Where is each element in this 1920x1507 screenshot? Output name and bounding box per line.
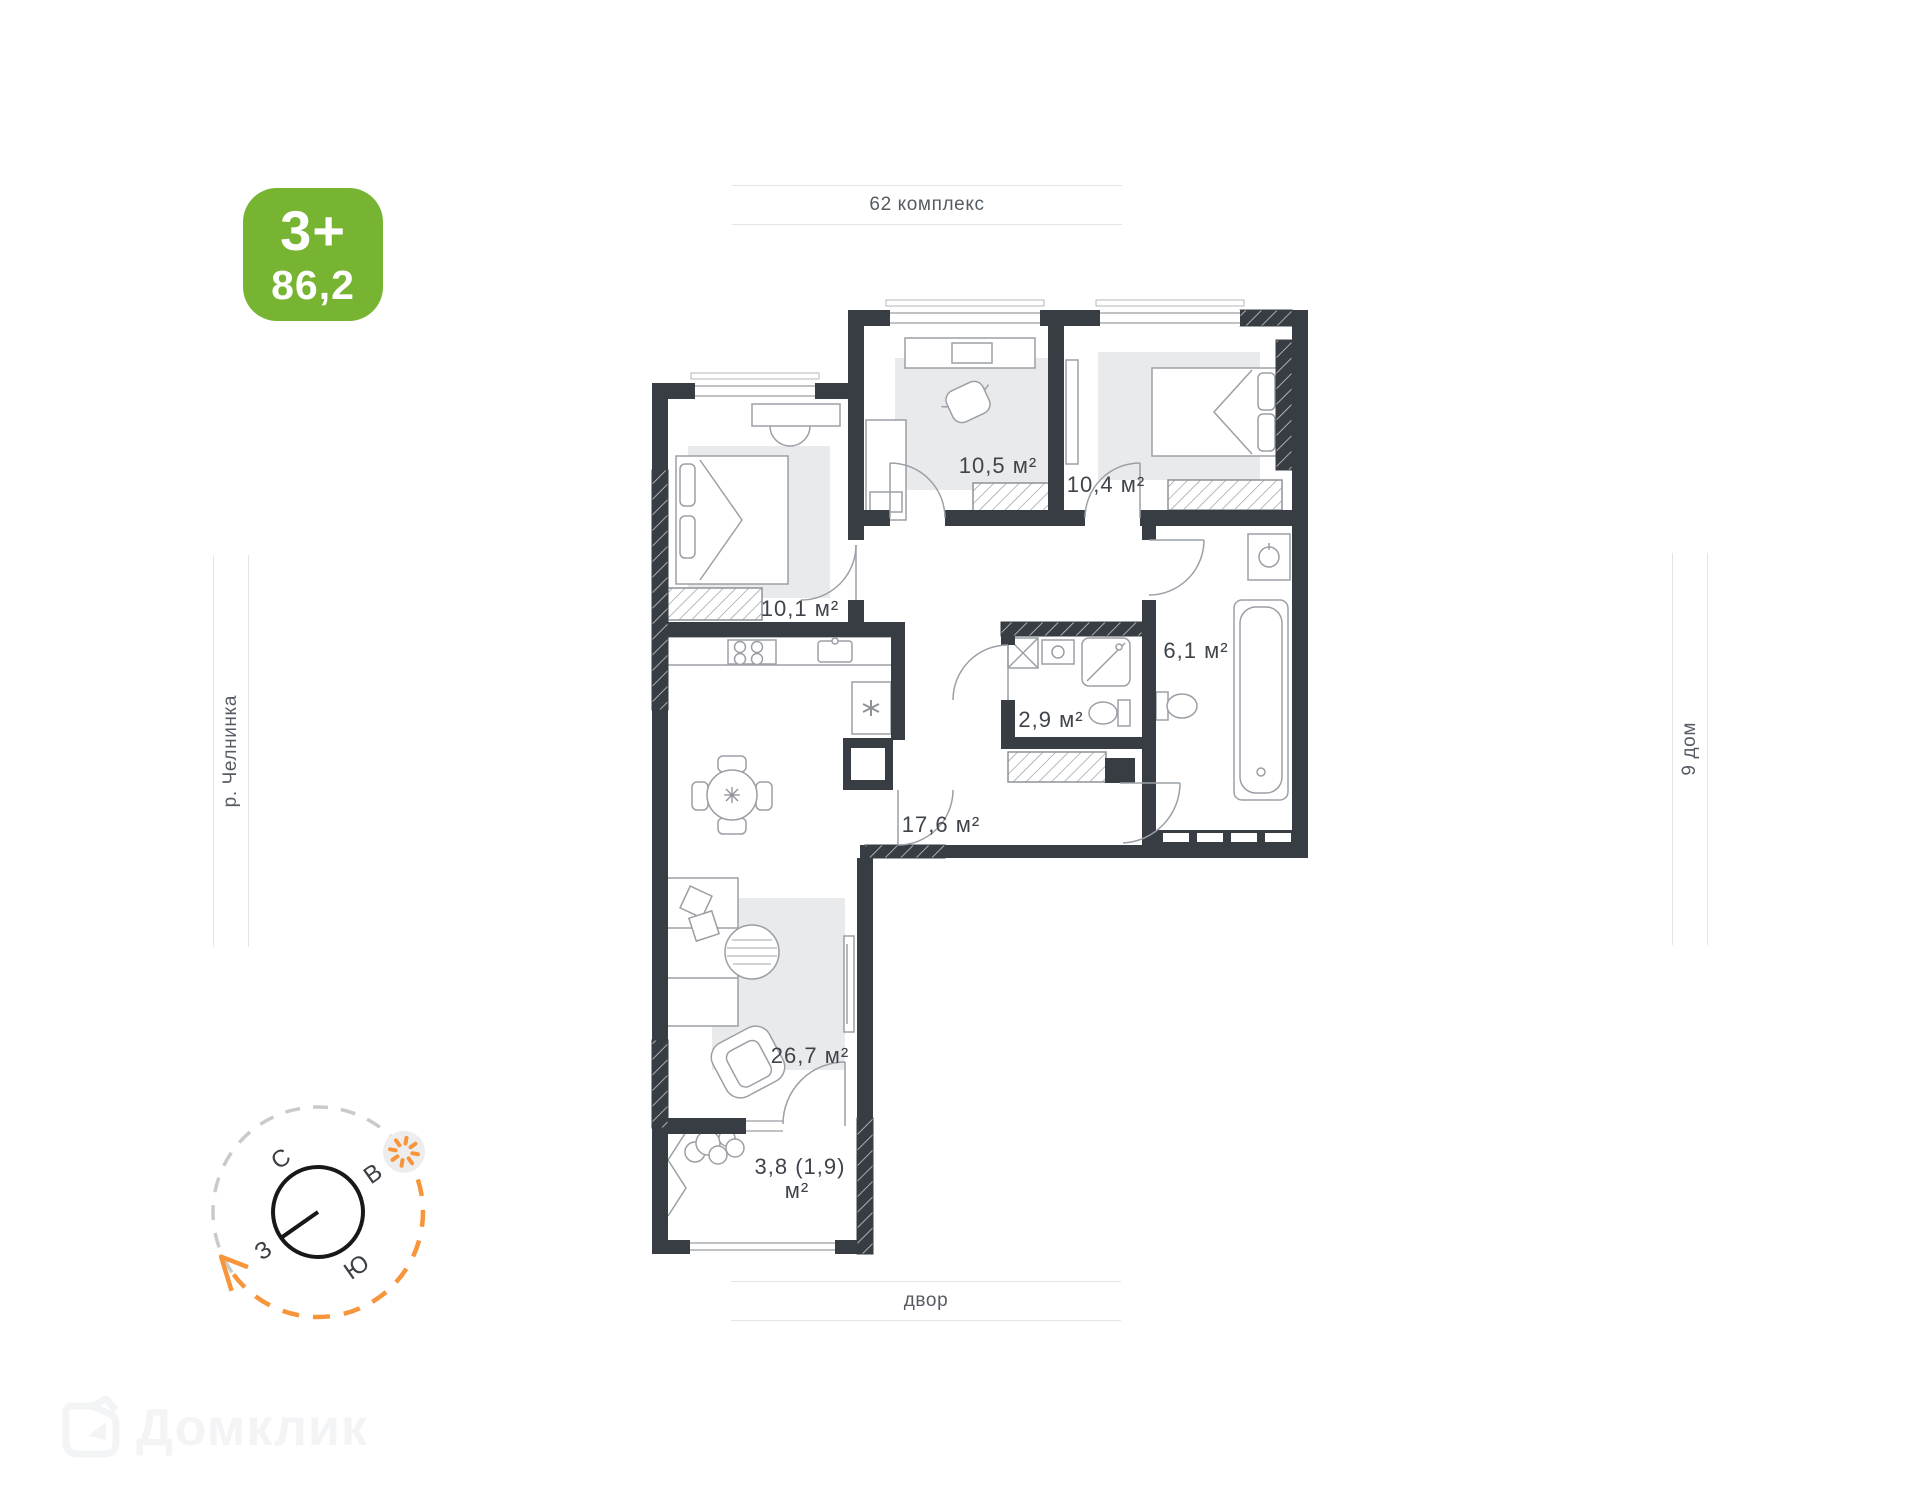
watermark-text: Домклик — [136, 1398, 368, 1458]
room-label-balcony-units: м² — [785, 1178, 809, 1203]
watermark: Домклик — [58, 1396, 368, 1460]
coffee-table — [725, 925, 779, 979]
bath-toilet — [1156, 692, 1197, 720]
compass-arrow — [212, 1247, 254, 1290]
wc-toilet — [1089, 700, 1130, 726]
double-bed-right — [1152, 368, 1280, 456]
hallway-wardrobe-hatch — [1008, 752, 1106, 782]
room-label-hallway: 17,6 м² — [902, 812, 980, 837]
balcony-plants — [685, 1130, 744, 1164]
sun-icon — [375, 1123, 433, 1181]
dresser — [752, 404, 840, 446]
wc-basin — [1042, 640, 1074, 664]
wardrobe-hatch-bedroom-101 — [666, 588, 762, 620]
window-bedroom-104 — [1096, 300, 1244, 326]
domclick-logo-icon — [58, 1396, 122, 1460]
window-balcony — [690, 1243, 835, 1250]
room-label-living: 26,7 м² — [771, 1043, 849, 1068]
desk — [905, 338, 1035, 368]
shelf — [1066, 360, 1078, 464]
compass-south: Ю — [339, 1249, 374, 1285]
door-balcony — [783, 1062, 845, 1126]
room-label-bedroom-101: 10,1 м² — [761, 596, 839, 621]
window-living-balcony — [746, 1118, 783, 1134]
bathtub — [1234, 600, 1288, 800]
balcony-panel — [668, 1132, 686, 1216]
window-bedroom-105 — [886, 300, 1044, 326]
shower — [1082, 638, 1130, 686]
room-label-wc: 2,9 м² — [1018, 707, 1083, 732]
bath-vanity — [1248, 534, 1290, 580]
dining-table — [692, 756, 772, 834]
door-wc — [953, 645, 1008, 700]
compass-west: З — [250, 1236, 277, 1266]
room-label-balcony: 3,8 (1,9) — [755, 1154, 846, 1179]
fridge — [852, 682, 891, 734]
window-bedroom-101 — [691, 373, 819, 399]
floor-plan: 10,5 м² 10,4 м² 10,1 м² 6,1 м² 2,9 м² 17… — [0, 0, 1920, 1507]
wardrobe-hatch-bedroom-105 — [973, 483, 1050, 511]
compass: С В Ю З — [163, 1054, 482, 1365]
compass-north: С — [266, 1143, 296, 1175]
single-bed — [866, 420, 906, 520]
compass-east: В — [359, 1158, 388, 1189]
room-label-bathroom: 6,1 м² — [1163, 638, 1228, 663]
door-bathroom — [1149, 540, 1204, 595]
double-bed-left — [676, 456, 788, 584]
room-label-bedroom-105: 10,5 м² — [959, 453, 1037, 478]
wardrobe-hatch-bedroom-104 — [1168, 480, 1282, 510]
kitchen-counter — [666, 637, 893, 665]
tv — [844, 936, 854, 1032]
room-label-bedroom-104: 10,4 м² — [1067, 472, 1145, 497]
